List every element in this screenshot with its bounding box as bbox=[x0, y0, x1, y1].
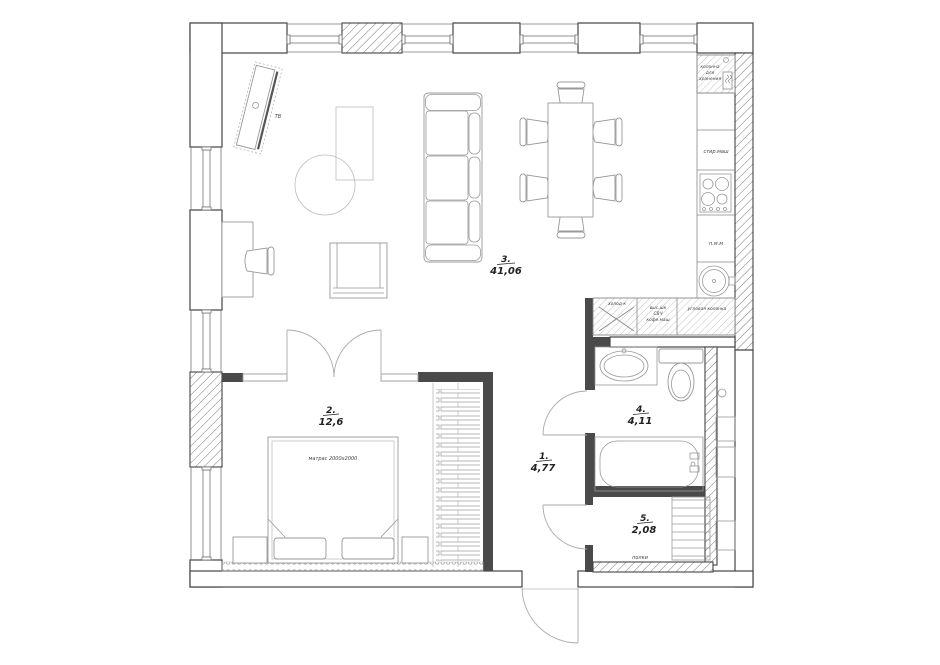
toilet bbox=[659, 349, 703, 401]
fridge-label: холод-к bbox=[607, 302, 626, 307]
entry-door bbox=[522, 587, 578, 643]
wardrobe bbox=[433, 383, 480, 567]
closet-shelving bbox=[672, 497, 710, 560]
kitchen-sink bbox=[699, 266, 735, 296]
svg-text:4,11: 4,11 bbox=[627, 416, 653, 427]
armchair bbox=[330, 243, 387, 298]
window bbox=[402, 24, 453, 52]
svg-text:12,6: 12,6 bbox=[319, 417, 344, 428]
bedroom-double-door bbox=[287, 330, 381, 377]
coffee-table bbox=[336, 107, 373, 180]
tv-label: ТВ bbox=[275, 114, 282, 120]
round-rug bbox=[295, 155, 355, 215]
closet-door bbox=[543, 505, 587, 549]
storage-label-2: для bbox=[705, 71, 715, 76]
dining-table bbox=[548, 103, 593, 217]
living-room-furniture: ТВ bbox=[222, 62, 482, 298]
room-label-5: 5. 2,08 bbox=[632, 514, 657, 536]
nightstand-left bbox=[233, 537, 267, 563]
shelves-label: полки bbox=[632, 555, 649, 561]
sofa bbox=[424, 93, 482, 262]
utility-niche bbox=[716, 389, 735, 550]
bedroom: матрас 2000x2000 bbox=[222, 383, 483, 571]
wall-pier-hatched bbox=[190, 372, 222, 467]
storage-label-3: хранения bbox=[698, 77, 721, 82]
corner-unit-label: угловая колонка bbox=[687, 307, 727, 312]
window bbox=[287, 24, 342, 52]
storage-label-1: колонна bbox=[700, 65, 720, 70]
window bbox=[520, 24, 578, 52]
svg-text:4,77: 4,77 bbox=[530, 463, 556, 474]
room-label-4: 4. 4,11 bbox=[627, 405, 653, 427]
dining-set bbox=[520, 82, 622, 238]
right-wall-hatched bbox=[735, 53, 753, 350]
stove bbox=[700, 174, 731, 212]
bathroom-sink bbox=[595, 347, 657, 385]
tall-cabinet-label: выс.шк bbox=[650, 306, 667, 311]
room-label-3: 3. 41,06 bbox=[489, 255, 522, 277]
washer-label: стир.маш bbox=[703, 149, 729, 155]
mattress-label: матрас 2000x2000 bbox=[309, 456, 358, 462]
window bbox=[640, 24, 697, 52]
nightstand-right bbox=[402, 537, 428, 563]
svg-text:41,06: 41,06 bbox=[489, 266, 522, 277]
bed: матрас 2000x2000 bbox=[268, 437, 398, 563]
svg-text:2,08: 2,08 bbox=[632, 525, 657, 536]
microwave-label: СВЧ bbox=[653, 311, 662, 317]
closet-bottom-wall bbox=[593, 562, 713, 572]
desk bbox=[222, 222, 274, 297]
tv-unit bbox=[234, 62, 282, 154]
room-label-1: 1. 4,77 bbox=[530, 452, 556, 474]
wall-pier-hatched bbox=[342, 23, 402, 53]
floor-plan-page: ТВ bbox=[0, 0, 940, 665]
window bbox=[191, 310, 221, 372]
bathtub bbox=[595, 437, 703, 491]
window bbox=[191, 467, 221, 560]
window bbox=[191, 147, 221, 210]
room-label-2: 2. 12,6 bbox=[319, 406, 344, 428]
bathroom-door bbox=[543, 391, 587, 435]
dishwasher-label: п.м.м bbox=[709, 241, 723, 247]
floor-plan-drawing: ТВ bbox=[0, 0, 940, 665]
coffee-machine-label: кофе.маш bbox=[646, 317, 669, 323]
